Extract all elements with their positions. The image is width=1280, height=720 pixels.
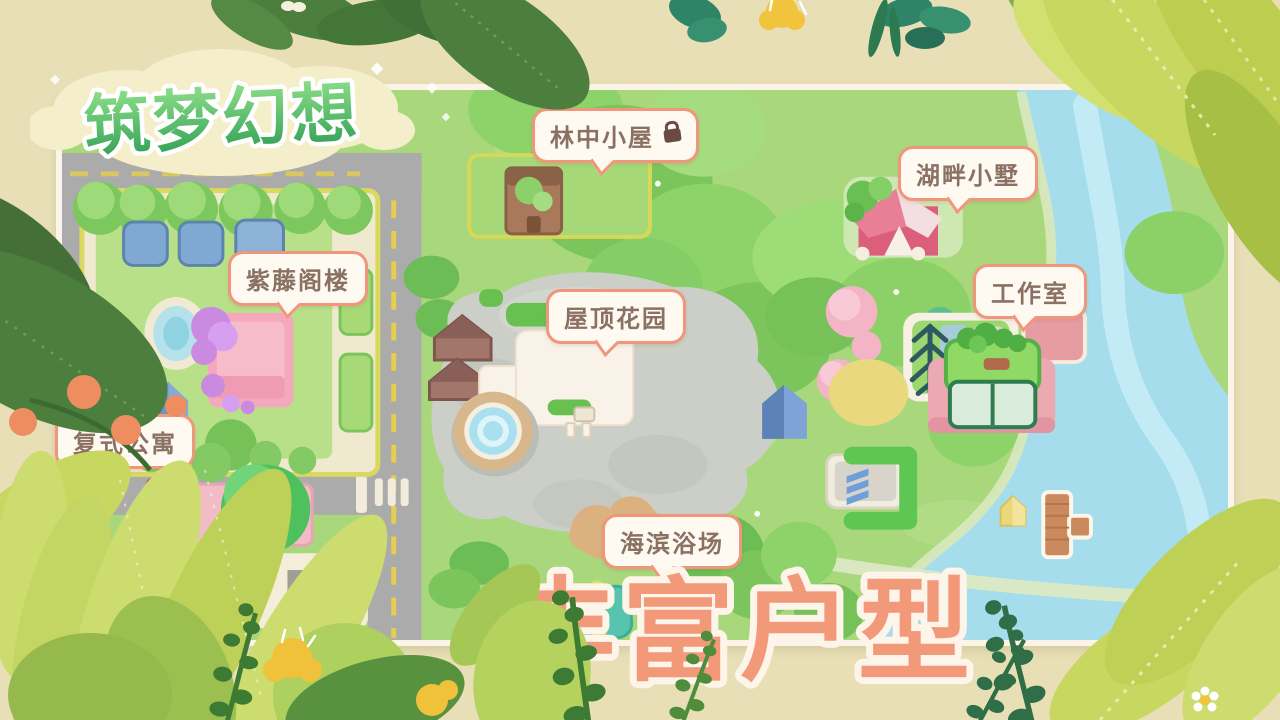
moth-icon [281, 1, 306, 12]
map-label-forest-cabin[interactable]: 林中小屋 [532, 108, 699, 163]
label-text: 工作室 [991, 274, 1069, 309]
yellow-clearing [829, 359, 908, 426]
yellow-flower-icon-4 [416, 680, 458, 716]
label-text: 湖畔小墅 [916, 156, 1020, 191]
tagline-banner: 丰富户型 [470, 548, 1010, 718]
yellow-flower-icon [759, 0, 806, 30]
label-text: 林中小屋 [550, 118, 654, 153]
white-daisy-icon [1192, 687, 1219, 712]
label-text: 紫藤阁楼 [246, 261, 350, 296]
map-label-studio[interactable]: 工作室 [973, 264, 1087, 319]
map-label-lakeside-villa[interactable]: 湖畔小墅 [898, 146, 1038, 201]
map-label-rooftop-garden[interactable]: 屋顶花园 [546, 289, 686, 344]
game-logo: 筑梦幻想 [30, 48, 420, 188]
lock-icon [663, 128, 682, 143]
label-text: 屋顶花园 [564, 299, 668, 334]
forest-cabin-area [469, 155, 650, 237]
map-label-wisteria-loft[interactable]: 紫藤阁楼 [228, 251, 368, 306]
tagline-text: 丰富户型 [504, 569, 976, 694]
game-screenshot: 林中小屋 湖畔小墅 紫藤阁楼 屋顶花园 工作室 复式公寓 海滨浴场 丰富户型 [0, 0, 1280, 720]
yellow-flower-icon-2 [1079, 0, 1132, 37]
label-text: 复式公寓 [73, 424, 177, 459]
foliage-top-right-small [664, 0, 1132, 59]
map-label-duplex-apartment[interactable]: 复式公寓 [55, 414, 195, 469]
logo-title: 筑梦幻想 [82, 75, 361, 163]
